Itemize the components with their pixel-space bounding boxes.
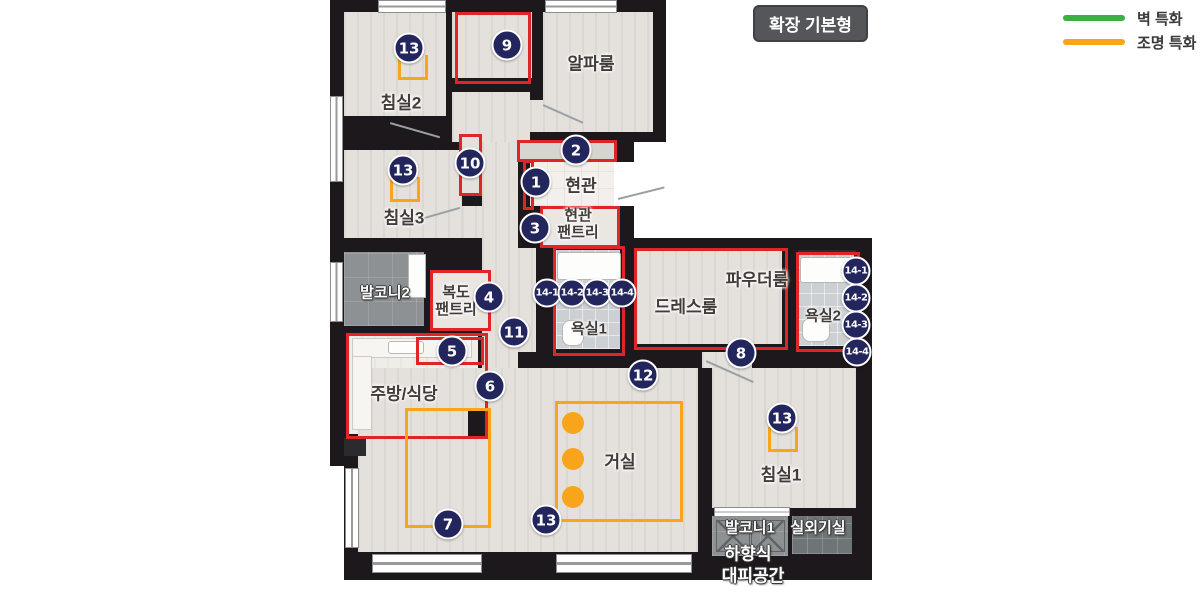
duct-shaft bbox=[344, 438, 366, 456]
label-kitchen: 주방/식당 bbox=[370, 380, 437, 405]
light-dot bbox=[562, 486, 584, 508]
label-powder-room: 파우더룸 bbox=[726, 266, 789, 291]
balcony2-cabinet bbox=[408, 254, 426, 298]
feature-marker-14-2[interactable]: 14-2 bbox=[842, 284, 871, 313]
label-entrance: 현관 bbox=[565, 172, 596, 197]
feature-marker-6[interactable]: 6 bbox=[475, 371, 506, 402]
feature-marker-13[interactable]: 13 bbox=[394, 33, 425, 64]
floor-alpha-door-gap bbox=[530, 100, 543, 132]
wall-feature-line-icon bbox=[1063, 15, 1125, 21]
label-line: 현관 bbox=[557, 207, 598, 224]
feature-marker-13[interactable]: 13 bbox=[767, 403, 798, 434]
label-balcony2: 발코니2 bbox=[360, 282, 410, 303]
label-balcony1: 발코니1 bbox=[725, 517, 775, 538]
feature-marker-9[interactable]: 9 bbox=[492, 30, 523, 61]
window bbox=[545, 0, 617, 13]
label-outdoor-unit: 실외기실 bbox=[790, 517, 845, 538]
legend-label: 벽 특화 bbox=[1137, 8, 1183, 29]
light-dot bbox=[562, 448, 584, 470]
legend: 벽 특화 조명 특화 bbox=[1063, 6, 1198, 54]
floor-plan-page: 침실2 알파룸 현관 현관 팬트리 침실3 발코니2 복도 팬트리 욕실1 드레… bbox=[0, 0, 1200, 592]
light-feature-line-icon bbox=[1063, 39, 1125, 45]
label-bath1: 욕실1 bbox=[571, 318, 607, 339]
feature-marker-11[interactable]: 11 bbox=[499, 317, 530, 348]
label-corridor-pantry: 복도 팬트리 bbox=[435, 284, 476, 319]
window bbox=[372, 554, 482, 573]
legend-row-light: 조명 특화 bbox=[1063, 30, 1198, 54]
feature-marker-12[interactable]: 12 bbox=[628, 360, 659, 391]
plan-type-badge: 확장 기본형 bbox=[753, 5, 868, 42]
window bbox=[714, 507, 790, 517]
feature-marker-14-4[interactable]: 14-4 bbox=[608, 279, 637, 308]
feature-marker-5[interactable]: 5 bbox=[437, 336, 468, 367]
feature-marker-7[interactable]: 7 bbox=[433, 509, 464, 540]
feature-marker-14-4[interactable]: 14-4 bbox=[843, 338, 872, 367]
legend-label: 조명 특화 bbox=[1137, 32, 1196, 53]
floor-bedroom3-door-gap bbox=[462, 206, 482, 238]
feature-marker-4[interactable]: 4 bbox=[474, 282, 505, 313]
feature-marker-13[interactable]: 13 bbox=[531, 505, 562, 536]
feature-marker-14-3[interactable]: 14-3 bbox=[842, 311, 871, 340]
window bbox=[330, 262, 343, 322]
label-living-room: 거실 bbox=[604, 448, 635, 473]
label-line: 복도 bbox=[435, 284, 476, 301]
label-dressroom: 드레스룸 bbox=[655, 293, 718, 318]
window bbox=[345, 468, 359, 548]
feature-marker-10[interactable]: 10 bbox=[455, 148, 486, 179]
label-bedroom1: 침실1 bbox=[761, 461, 802, 486]
label-bedroom3: 침실3 bbox=[384, 204, 425, 229]
legend-row-wall: 벽 특화 bbox=[1063, 6, 1198, 30]
feature-marker-3[interactable]: 3 bbox=[520, 213, 551, 244]
window bbox=[378, 0, 446, 13]
window bbox=[556, 554, 692, 573]
feature-marker-13[interactable]: 13 bbox=[388, 155, 419, 186]
feature-marker-2[interactable]: 2 bbox=[561, 135, 592, 166]
label-line: 팬트리 bbox=[557, 224, 598, 241]
label-entrance-pantry: 현관 팬트리 bbox=[557, 207, 598, 242]
light-dot bbox=[562, 412, 584, 434]
feature-marker-8[interactable]: 8 bbox=[726, 338, 757, 369]
label-line: 팬트리 bbox=[435, 301, 476, 318]
label-evac-line2: 대피공간 bbox=[722, 562, 785, 587]
feature-marker-14-1[interactable]: 14-1 bbox=[842, 257, 871, 286]
label-alpha-room: 알파룸 bbox=[568, 50, 615, 75]
label-bath2: 욕실2 bbox=[805, 305, 841, 326]
feature-marker-1[interactable]: 1 bbox=[521, 167, 552, 198]
label-bedroom2: 침실2 bbox=[381, 89, 422, 114]
window bbox=[330, 96, 343, 182]
